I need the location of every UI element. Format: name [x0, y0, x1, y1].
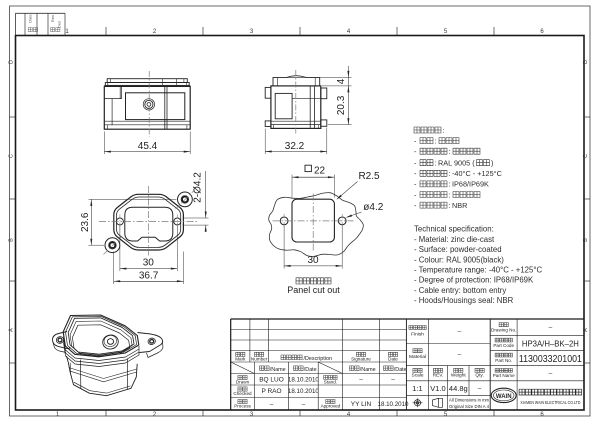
svg-text:-: - — [414, 201, 417, 210]
svg-text:A: A — [8, 328, 14, 332]
svg-text:–: – — [549, 325, 553, 332]
svg-text:C: C — [8, 154, 14, 158]
svg-text:RAL 9005 (: RAL 9005 ( — [438, 159, 475, 168]
svg-text::: : — [449, 147, 451, 156]
svg-text:–: – — [302, 401, 306, 408]
svg-text:-40°C - +125°C: -40°C - +125°C — [452, 169, 502, 178]
svg-text:-: - — [414, 136, 417, 145]
svg-text:WAIN: WAIN — [496, 394, 512, 400]
svg-text:Part Code: Part Code — [493, 343, 514, 348]
svg-text:Drawing No.: Drawing No. — [491, 327, 516, 332]
svg-text:-: - — [414, 190, 417, 199]
svg-text:Stand.: Stand. — [324, 379, 337, 384]
svg-text:Mark: Mark — [235, 357, 246, 362]
svg-text:Number: Number — [251, 357, 268, 362]
svg-text:6: 6 — [540, 412, 544, 418]
svg-text:/Name: /Name — [360, 367, 376, 373]
svg-text:D: D — [583, 60, 589, 64]
svg-text:6: 6 — [540, 29, 544, 35]
svg-text:Original Size DIN A 4: Original Size DIN A 4 — [449, 404, 490, 409]
svg-text:- Cable entry: bottom entr: - Cable entry: bottom entry — [414, 286, 506, 295]
svg-text::: : — [449, 190, 451, 199]
svg-text:–: – — [458, 329, 462, 336]
svg-text:BQ LUO: BQ LUO — [259, 377, 284, 384]
svg-text:4: 4 — [347, 29, 351, 35]
svg-text:Signature: Signature — [351, 357, 371, 362]
svg-text:Technical specification:: Technical specification: — [414, 225, 494, 234]
svg-text:NBR: NBR — [452, 201, 467, 210]
svg-text:- Colour: RAL 9005(black): - Colour: RAL 9005(black) — [414, 255, 504, 264]
svg-text:A: A — [583, 328, 589, 332]
svg-text:Date: Date — [388, 357, 398, 362]
svg-text:–: – — [270, 401, 274, 408]
svg-text:Finish: Finish — [411, 331, 424, 337]
svg-text:1130033201001: 1130033201001 — [519, 353, 582, 365]
svg-text:4: 4 — [347, 412, 351, 418]
svg-text:-: - — [414, 180, 417, 189]
svg-text::: : — [443, 126, 445, 135]
svg-text:44.8g: 44.8g — [449, 384, 468, 393]
svg-text:45.4: 45.4 — [138, 141, 158, 152]
svg-text:V1.0: V1.0 — [430, 384, 445, 393]
svg-text:): ) — [491, 159, 493, 168]
svg-text:–: – — [391, 377, 395, 384]
svg-text:2: 2 — [153, 29, 157, 35]
svg-text:/Date: /Date — [394, 367, 407, 373]
svg-text:2: 2 — [153, 412, 157, 418]
svg-text:Qty.: Qty. — [475, 373, 483, 379]
svg-text:- Degree of protection: IP: - Degree of protection: IP68/IP69K — [414, 276, 534, 285]
svg-text:23.6: 23.6 — [80, 212, 91, 232]
svg-text:D: D — [8, 60, 14, 64]
svg-text:Drawn: Drawn — [236, 379, 250, 384]
svg-text:–: – — [458, 352, 462, 359]
svg-text:IP68/IP69K: IP68/IP69K — [452, 180, 489, 189]
svg-text:C: C — [583, 154, 589, 158]
svg-text:- Material: zinc die-cast: - Material: zinc die-cast — [414, 235, 495, 244]
svg-text:18.10.2010: 18.10.2010 — [288, 377, 320, 384]
svg-text:1: 1 — [56, 412, 60, 418]
svg-text:- Temperature range: -40°C: - Temperature range: -40°C - +125°C — [414, 266, 542, 275]
svg-text:30: 30 — [143, 258, 155, 269]
svg-text:Part No.: Part No. — [495, 358, 512, 363]
svg-text:20.3: 20.3 — [336, 95, 347, 115]
svg-text:HP3A/H–BK–2H: HP3A/H–BK–2H — [522, 338, 579, 348]
svg-text:B: B — [8, 238, 14, 242]
svg-text:P RAO: P RAO — [261, 388, 281, 395]
svg-text:–: – — [549, 371, 553, 378]
svg-text:-: - — [414, 147, 417, 156]
svg-text:- Surface: powder-coated: - Surface: powder-coated — [414, 245, 502, 254]
svg-text:1: 1 — [65, 29, 69, 35]
svg-text::: : — [435, 159, 437, 168]
svg-text:5: 5 — [444, 29, 448, 35]
svg-text:4: 4 — [336, 78, 347, 84]
svg-text:XIAMEN WAIN ELECTRICAL CO.LTD: XIAMEN WAIN ELECTRICAL CO.LTD — [520, 400, 580, 405]
svg-text:ø4.2: ø4.2 — [363, 202, 383, 213]
svg-text:32.2: 32.2 — [285, 141, 305, 152]
svg-text:Weight: Weight — [451, 373, 467, 379]
svg-text:Checked: Checked — [233, 391, 252, 396]
svg-text:2-Ø4.2: 2-Ø4.2 — [192, 172, 203, 203]
svg-text:Des: Des — [57, 21, 62, 28]
svg-text:3: 3 — [250, 412, 254, 418]
svg-text:/Name: /Name — [270, 367, 286, 373]
svg-text:REV.: REV. — [433, 373, 444, 379]
svg-text:18.10.2010: 18.10.2010 — [288, 388, 320, 395]
svg-text::: : — [435, 136, 437, 145]
svg-text:All Dimensions in mm: All Dimensions in mm — [449, 398, 489, 403]
svg-text::: : — [449, 201, 451, 210]
svg-text:1:1: 1:1 — [412, 384, 422, 393]
svg-text:Process: Process — [234, 403, 251, 408]
svg-text:Material: Material — [409, 354, 426, 360]
svg-text:3: 3 — [250, 29, 254, 35]
svg-text:Scale: Scale — [412, 373, 424, 379]
svg-text:36.7: 36.7 — [139, 271, 159, 282]
svg-text::: : — [449, 180, 451, 189]
svg-text:22: 22 — [314, 165, 326, 176]
svg-text:30: 30 — [307, 255, 319, 266]
svg-text:-: - — [414, 169, 417, 178]
svg-text:YY LIN: YY LIN — [351, 401, 372, 408]
svg-text:/Description: /Description — [304, 356, 332, 362]
svg-text:- Hoods/Housings seal: NBR: - Hoods/Housings seal: NBR — [414, 296, 514, 305]
svg-text:Part Name: Part Name — [493, 373, 515, 378]
svg-text:–: – — [359, 377, 363, 384]
svg-text:R2.5: R2.5 — [358, 171, 380, 182]
svg-text:B: B — [583, 238, 589, 242]
svg-text:Rev: Rev — [50, 15, 55, 22]
svg-text:-: - — [414, 159, 417, 168]
svg-text::: : — [449, 169, 451, 178]
svg-text:Approved: Approved — [321, 403, 341, 408]
svg-text:Panel cut out: Panel cut out — [287, 285, 340, 295]
svg-text:/Date: /Date — [304, 367, 317, 373]
svg-text:–: – — [478, 386, 482, 393]
svg-text:5: 5 — [444, 412, 448, 418]
svg-text:Date: Date — [28, 14, 33, 23]
svg-text:18.10.2010: 18.10.2010 — [378, 401, 410, 408]
